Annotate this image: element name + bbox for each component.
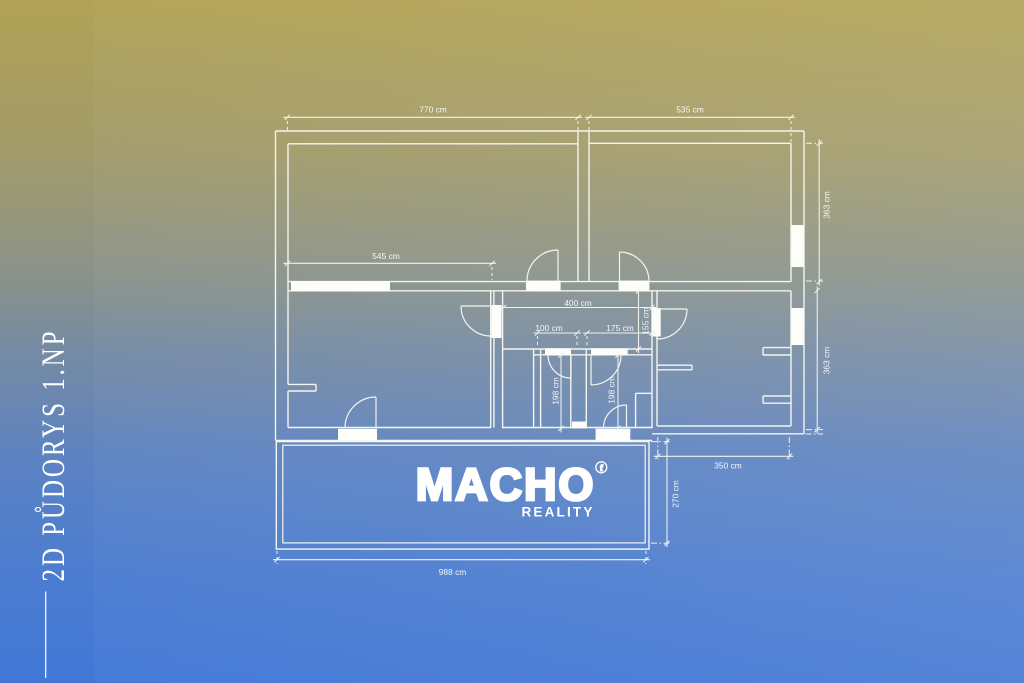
svg-text:270 cm: 270 cm: [671, 480, 681, 507]
svg-text:100 cm: 100 cm: [535, 323, 562, 333]
svg-text:350 cm: 350 cm: [714, 460, 741, 470]
svg-text:400 cm: 400 cm: [564, 298, 591, 308]
svg-text:REALITY: REALITY: [521, 504, 594, 519]
svg-text:535 cm: 535 cm: [676, 104, 703, 114]
svg-text:2D PŮDORYS 1.NP: 2D PŮDORYS 1.NP: [34, 329, 72, 582]
svg-text:198 cm: 198 cm: [551, 377, 561, 404]
svg-text:175 cm: 175 cm: [606, 323, 633, 333]
svg-text:363 cm: 363 cm: [822, 191, 832, 218]
svg-text:545 cm: 545 cm: [372, 251, 399, 261]
svg-text:198 cm: 198 cm: [607, 376, 617, 403]
svg-text:155 cm: 155 cm: [641, 307, 651, 334]
svg-text:363 cm: 363 cm: [822, 347, 832, 374]
svg-text:988 cm: 988 cm: [439, 567, 466, 577]
svg-text:770 cm: 770 cm: [419, 104, 446, 114]
svg-text:MACHO: MACHO: [416, 459, 595, 510]
